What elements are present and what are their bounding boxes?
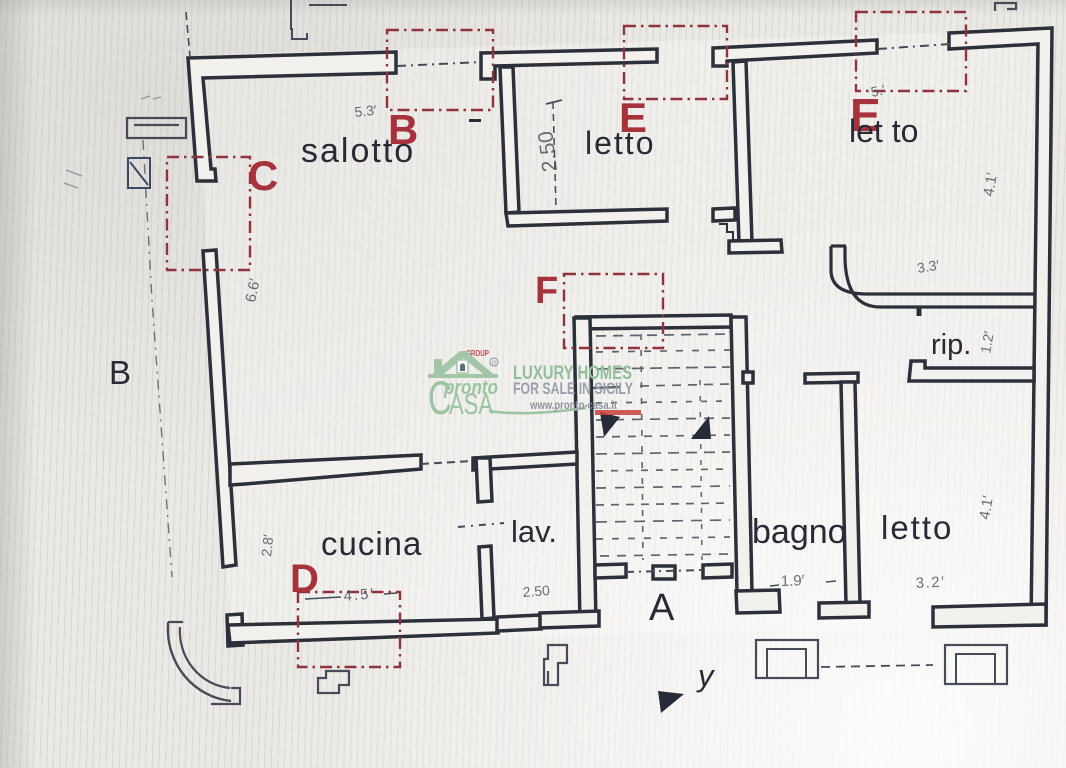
svg-text:D: D [290, 557, 319, 601]
svg-text:A: A [649, 587, 675, 629]
svg-text:cucina: cucina [321, 525, 422, 562]
svg-text:F: F [535, 270, 558, 312]
svg-text:2.8′: 2.8′ [258, 533, 276, 557]
svg-text:letto: letto [585, 125, 655, 161]
svg-text:R: R [492, 360, 497, 367]
svg-text:FOR SALE IN SICILY: FOR SALE IN SICILY [513, 379, 633, 398]
svg-text:3.2′: 3.2′ [915, 573, 946, 592]
svg-text:2.50: 2.50 [522, 582, 551, 600]
svg-text:bagno: bagno [752, 513, 847, 551]
svg-text:C: C [248, 152, 278, 199]
svg-text:1.9′: 1.9′ [781, 572, 805, 590]
svg-text:let to: let to [849, 113, 918, 149]
svg-text:lav.: lav. [511, 514, 557, 549]
svg-text:www.pronto-casa.it: www.pronto-casa.it [529, 400, 617, 412]
svg-text:rip.: rip. [931, 329, 971, 361]
svg-text:y: y [696, 658, 716, 693]
svg-text:5.3′: 5.3′ [354, 102, 378, 120]
svg-text:4.5′: 4.5′ [343, 585, 376, 605]
svg-text:salotto: salotto [301, 132, 415, 170]
svg-text:B: B [109, 354, 131, 391]
svg-text:ASA: ASA [449, 388, 493, 421]
svg-text:letto: letto [881, 509, 953, 546]
